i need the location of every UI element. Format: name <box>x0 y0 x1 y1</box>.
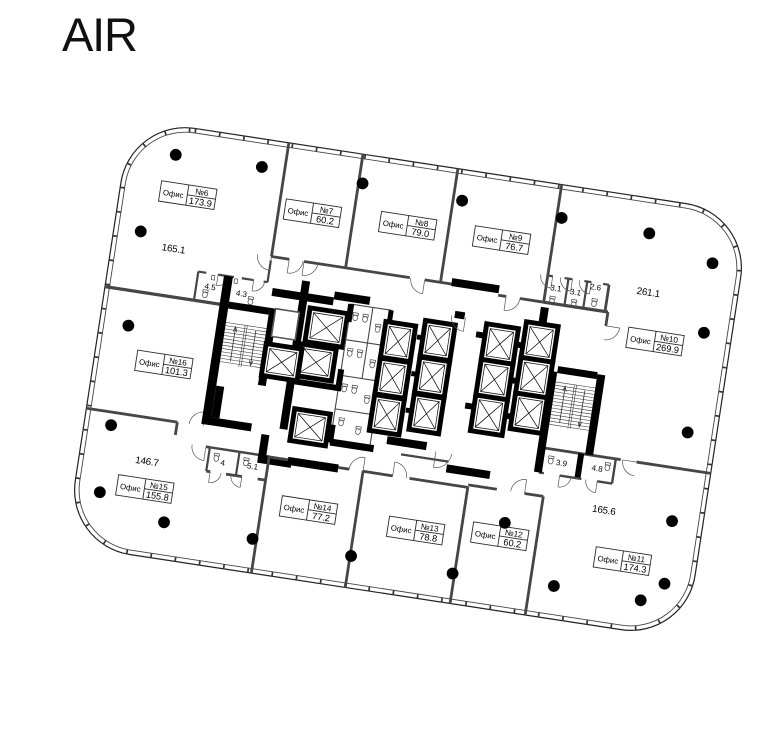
svg-text:3.1: 3.1 <box>550 283 563 294</box>
svg-text:AIR: AIR <box>62 8 137 61</box>
svg-text:3.1: 3.1 <box>569 287 582 298</box>
svg-text:2.6: 2.6 <box>589 282 602 293</box>
svg-text:3.9: 3.9 <box>555 458 568 469</box>
svg-text:4.5: 4.5 <box>204 282 217 293</box>
svg-text:4.8: 4.8 <box>591 463 604 474</box>
svg-text:4.3: 4.3 <box>235 289 248 300</box>
